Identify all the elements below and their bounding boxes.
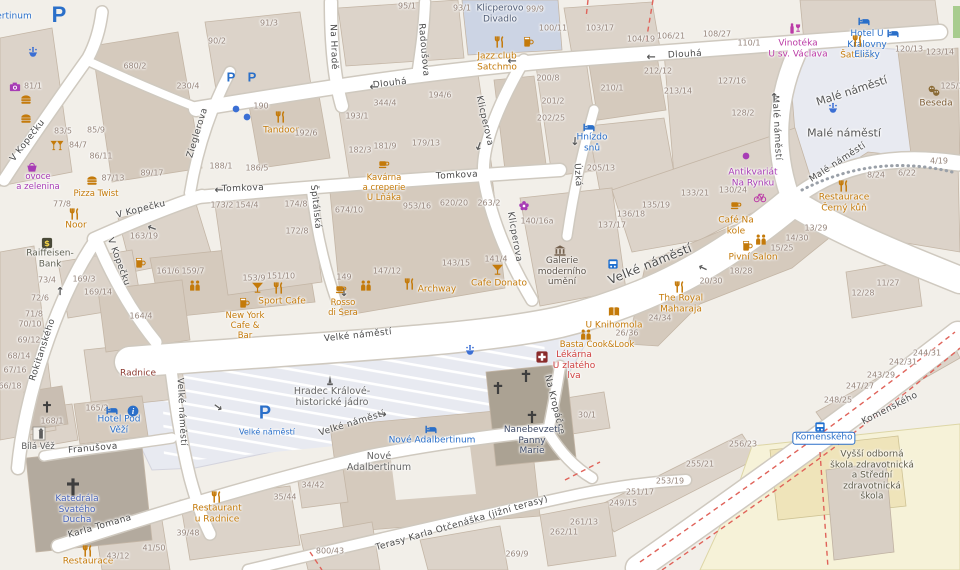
poi-label: The RoyalMaharaja xyxy=(659,293,703,314)
poi-label: Kavárnaa creperieU Lňáka xyxy=(363,173,406,203)
museum-icon xyxy=(554,245,567,258)
house-number: 95/1 xyxy=(398,1,416,10)
house-number: 137/17 xyxy=(598,220,626,229)
pharmacy-icon xyxy=(536,351,549,364)
bed-icon xyxy=(425,423,438,436)
house-number: 99/9 xyxy=(526,4,544,13)
cross-icon xyxy=(491,381,505,395)
house-number: 84/7 xyxy=(69,140,87,149)
house-number: 172/8 xyxy=(285,226,308,235)
house-number: 344/4 xyxy=(373,98,396,107)
people-icon xyxy=(360,280,373,293)
oneway-arrow: → xyxy=(369,81,378,94)
poi-label: KatedrálaSvatéhoDucha xyxy=(55,494,98,526)
house-number: 69/12 xyxy=(17,335,40,344)
poi-label: NovéAdalbertinum xyxy=(347,451,411,473)
poi-label: Archway xyxy=(418,285,457,296)
bus-icon xyxy=(814,421,827,434)
house-number: 159/7 xyxy=(181,266,204,275)
house-number: 174/8 xyxy=(284,199,307,208)
house-number: 34/42 xyxy=(301,480,324,489)
fountain-icon xyxy=(27,46,40,59)
restaurant-icon xyxy=(852,35,865,48)
bed-icon xyxy=(858,15,871,28)
poi-label: Hradec Králové-historické jádro xyxy=(294,386,370,408)
house-number: 125/1 xyxy=(940,81,960,90)
house-number: 41/50 xyxy=(142,543,165,552)
cross-icon xyxy=(525,410,539,424)
house-number: 67/16 xyxy=(3,365,26,374)
house-number: 110/1 xyxy=(737,38,760,47)
house-number: 147/12 xyxy=(373,266,401,275)
burger-icon xyxy=(20,113,33,126)
house-number: 213/14 xyxy=(664,86,692,95)
masks-icon xyxy=(928,85,941,98)
house-number: 24/34 xyxy=(648,313,671,322)
house-number: 13/29 xyxy=(804,223,827,232)
house-number: 154/4 xyxy=(235,200,258,209)
bank-icon: $ xyxy=(41,237,54,250)
restaurant-icon xyxy=(69,208,82,221)
house-number: 130/24 xyxy=(719,185,747,194)
house-number: 108/27 xyxy=(703,29,731,38)
house-number: 12/28 xyxy=(851,288,874,297)
poi-label: Radnice xyxy=(120,369,156,380)
street-label: Na Hradě xyxy=(327,24,339,70)
camera-icon xyxy=(9,81,22,94)
poi-label: VinotékaU sv. Václava xyxy=(768,38,827,59)
house-number: 247/27 xyxy=(846,381,874,390)
coffee-icon xyxy=(335,283,348,296)
poi-label: Vyšší odbornáškola zdravotnickáa Střední… xyxy=(830,449,914,502)
poi-label: Galeriemoderníhoumění xyxy=(538,256,586,288)
poi-label: New YorkCafe &Bar xyxy=(226,311,265,341)
house-number: 91/3 xyxy=(260,18,278,27)
cocktail-icon xyxy=(492,264,505,277)
house-number: 253/19 xyxy=(656,476,684,485)
poi-label: Pizza Twist xyxy=(74,189,119,199)
beer-icon xyxy=(238,297,251,310)
cross-icon xyxy=(519,369,533,383)
house-number: 164/4 xyxy=(129,311,152,320)
cocktail-icon xyxy=(252,282,265,295)
burger-icon xyxy=(20,94,33,107)
house-number: 87/13 xyxy=(101,173,124,182)
house-number: 11/27 xyxy=(876,278,899,287)
house-number: 212/12 xyxy=(644,66,672,75)
bed-icon xyxy=(887,27,900,40)
oneway-arrow: → xyxy=(568,136,581,146)
house-number: 190 xyxy=(253,101,268,110)
house-number: 248/25 xyxy=(824,395,852,404)
house-number: 168/1 xyxy=(40,416,63,425)
house-number: 194/6 xyxy=(428,90,451,99)
beer-icon xyxy=(741,240,754,253)
monument-icon xyxy=(324,375,337,388)
poi-label: Restaurantu Radnice xyxy=(192,503,241,524)
street-label: Dlouhá xyxy=(668,49,703,61)
house-number: 205/13 xyxy=(587,163,615,172)
svg-text:$: $ xyxy=(44,238,50,248)
house-number: 136/18 xyxy=(617,209,645,218)
house-number: 39/48 xyxy=(176,528,199,537)
poi-label: Noor xyxy=(65,221,86,232)
house-number: 182/3 xyxy=(348,145,371,154)
house-number: 20/30 xyxy=(699,276,722,285)
house-number: 674/10 xyxy=(335,205,363,214)
house-number: 251/17 xyxy=(626,487,654,496)
restaurant-icon xyxy=(273,282,286,295)
house-number: 83/5 xyxy=(54,126,72,135)
dot-icon xyxy=(740,150,753,163)
house-number: 179/13 xyxy=(412,138,440,147)
beer-icon xyxy=(134,257,147,270)
house-number: 89/17 xyxy=(140,168,163,177)
street-label: Tomkova xyxy=(436,170,479,183)
oneway-arrow: → xyxy=(768,92,781,101)
house-number: 243/29 xyxy=(867,370,895,379)
coffee-icon xyxy=(730,199,743,212)
house-number: 26/36 xyxy=(615,328,638,337)
house-number: 123/14 xyxy=(926,47,954,56)
house-number: 6/22 xyxy=(898,168,916,177)
poi-label: Malé náměstí xyxy=(807,128,881,141)
house-number: 263/2 xyxy=(477,198,500,207)
restaurant-icon xyxy=(404,278,417,291)
house-number: 18/28 xyxy=(729,266,752,275)
house-number: 72/6 xyxy=(31,293,49,302)
house-number: 181/9 xyxy=(373,141,396,150)
house-number: 161/6 xyxy=(156,266,179,275)
house-number: 269/9 xyxy=(505,549,528,558)
people-icon xyxy=(580,329,593,342)
house-number: 100/11 xyxy=(539,23,567,32)
book-icon xyxy=(608,306,621,319)
house-number: 244/31 xyxy=(913,348,941,357)
house-number: 30/1 xyxy=(578,410,596,419)
house-number: 120/13 xyxy=(895,44,923,53)
poi-label: Pivní Salon xyxy=(728,253,777,264)
parking-icon: P xyxy=(259,413,271,414)
wine-icon xyxy=(789,23,802,36)
bicycle-icon xyxy=(754,191,767,204)
poi-label: Velké náměstí xyxy=(239,427,295,436)
poi-label: Sport Cafe xyxy=(258,297,306,308)
house-number: 135/19 xyxy=(642,200,670,209)
oneway-arrow: → xyxy=(377,407,387,421)
poi-label: KlicperovoDivadlo xyxy=(477,3,524,24)
poi-label: ovocea zelenina xyxy=(16,172,60,192)
house-number: 210/1 xyxy=(600,83,623,92)
parking-icon: P xyxy=(52,15,67,17)
house-number: 85/9 xyxy=(87,125,105,134)
map-canvas[interactable]: DlouháDlouháNa HraděRadoušovaKlicperovaK… xyxy=(0,0,960,570)
house-number: 186/5 xyxy=(245,163,268,172)
house-number: 200/8 xyxy=(536,73,559,82)
house-number: 81/1 xyxy=(24,81,42,90)
house-number: 14/30 xyxy=(785,233,808,242)
house-number: 169/14 xyxy=(84,287,112,296)
house-number: 201/2 xyxy=(541,96,564,105)
house-number: 8/24 xyxy=(867,170,885,179)
bed-icon xyxy=(583,121,596,134)
house-number: 4/19 xyxy=(930,156,948,165)
house-number: 141/4 xyxy=(484,254,507,263)
house-number: 15/25 xyxy=(770,243,793,252)
oneway-arrow: → xyxy=(646,51,655,64)
house-number: 800/43 xyxy=(316,546,344,555)
coffee-icon xyxy=(378,158,391,171)
house-number: 66/18 xyxy=(0,381,22,390)
house-number: 249/15 xyxy=(609,498,637,507)
restaurant-icon xyxy=(674,281,687,294)
poi-label: Nové Adalbertinum xyxy=(389,436,476,447)
poi-label: Basta Cook&Look xyxy=(560,340,635,350)
house-number: 104/19 xyxy=(627,34,655,43)
beer-icon xyxy=(522,36,535,49)
house-number: 71/8 xyxy=(25,309,43,318)
oneway-arrow: → xyxy=(54,286,67,295)
house-number: 133/21 xyxy=(681,188,709,197)
poi-label: ertinum xyxy=(0,12,32,23)
people-icon xyxy=(189,280,202,293)
poi-label: Café Nakole xyxy=(718,215,754,236)
people-icon xyxy=(755,234,768,247)
poi-label: NanebevzetíPannyMarie xyxy=(504,425,560,457)
house-number: 127/16 xyxy=(718,76,746,85)
cross-icon xyxy=(41,401,54,414)
poi-label: Cafe Donato xyxy=(471,279,527,290)
house-number: 43/12 xyxy=(106,551,129,560)
house-number: 73/4 xyxy=(38,275,56,284)
poi-label: Hotel PodVěží xyxy=(97,414,140,435)
tower-icon xyxy=(35,428,48,441)
house-number: 35/44 xyxy=(273,492,296,501)
house-number: 90/2 xyxy=(208,36,226,45)
restaurant-icon xyxy=(494,36,507,49)
house-number: 256/23 xyxy=(729,439,757,448)
house-number: 953/16 xyxy=(403,201,431,210)
house-number: 68/14 xyxy=(7,351,30,360)
house-number: 140/16a xyxy=(520,216,553,225)
house-number: 169/3 xyxy=(72,274,95,283)
house-number: 202/25 xyxy=(537,113,565,122)
house-number: 149 xyxy=(336,272,351,281)
poi-label: Beseda xyxy=(919,99,952,110)
house-number: 151/10 xyxy=(267,271,295,280)
house-number: 106/21 xyxy=(657,31,685,40)
restaurant-icon xyxy=(275,111,288,124)
bed-icon xyxy=(106,404,119,417)
restaurant-icon xyxy=(211,491,224,504)
house-number: 192/6 xyxy=(294,128,317,137)
house-number: 143/15 xyxy=(442,258,470,267)
fountain-icon xyxy=(827,102,840,115)
cross-icon xyxy=(63,477,83,497)
info-icon: i xyxy=(127,405,140,418)
flower-icon xyxy=(518,200,531,213)
poi-label: Komenského xyxy=(792,432,855,445)
poi-label: Rossodi Sera xyxy=(328,298,358,318)
house-number: 261/13 xyxy=(570,517,598,526)
restaurant-icon xyxy=(838,180,851,193)
oneway-arrow: → xyxy=(214,184,223,197)
house-number: 128/2 xyxy=(731,108,754,117)
house-number: 86/11 xyxy=(89,151,112,160)
dot-icon xyxy=(241,111,254,124)
poi-label: Tandoor xyxy=(263,126,299,137)
poi-label: LékárnaU zlatéholva xyxy=(553,350,595,382)
house-number: 262/11 xyxy=(550,527,578,536)
house-number: 620/20 xyxy=(440,198,468,207)
house-number: 173/2 xyxy=(210,200,233,209)
oneway-arrow: → xyxy=(507,55,516,68)
bus-icon xyxy=(607,258,620,271)
house-number: 680/2 xyxy=(123,61,146,70)
house-number: 193/1 xyxy=(345,111,368,120)
burger-icon xyxy=(86,175,99,188)
basket-icon xyxy=(26,161,39,174)
house-number: 255/21 xyxy=(686,459,714,468)
house-number: 70/10 xyxy=(18,319,41,328)
house-number: 242/31 xyxy=(889,357,917,366)
house-number: 188/1 xyxy=(209,161,232,170)
green-area xyxy=(953,6,960,38)
poi-label: RestauraceČerný kůň xyxy=(819,192,870,213)
parking-icon: P xyxy=(248,77,257,78)
house-number: 103/17 xyxy=(586,23,614,32)
street-label: Úzká xyxy=(571,163,583,187)
fountain-icon xyxy=(464,344,477,357)
poi-label: Bílá Věž xyxy=(21,442,54,452)
house-number: 230/4 xyxy=(176,81,199,90)
poi-label: Raiffeisen-Bank xyxy=(26,248,74,269)
street-label: Tomkova xyxy=(222,183,265,195)
restaurant-icon xyxy=(82,545,95,558)
house-number: 93/1 xyxy=(453,3,471,12)
bar-icon xyxy=(51,140,64,153)
parking-icon: P xyxy=(227,77,236,78)
